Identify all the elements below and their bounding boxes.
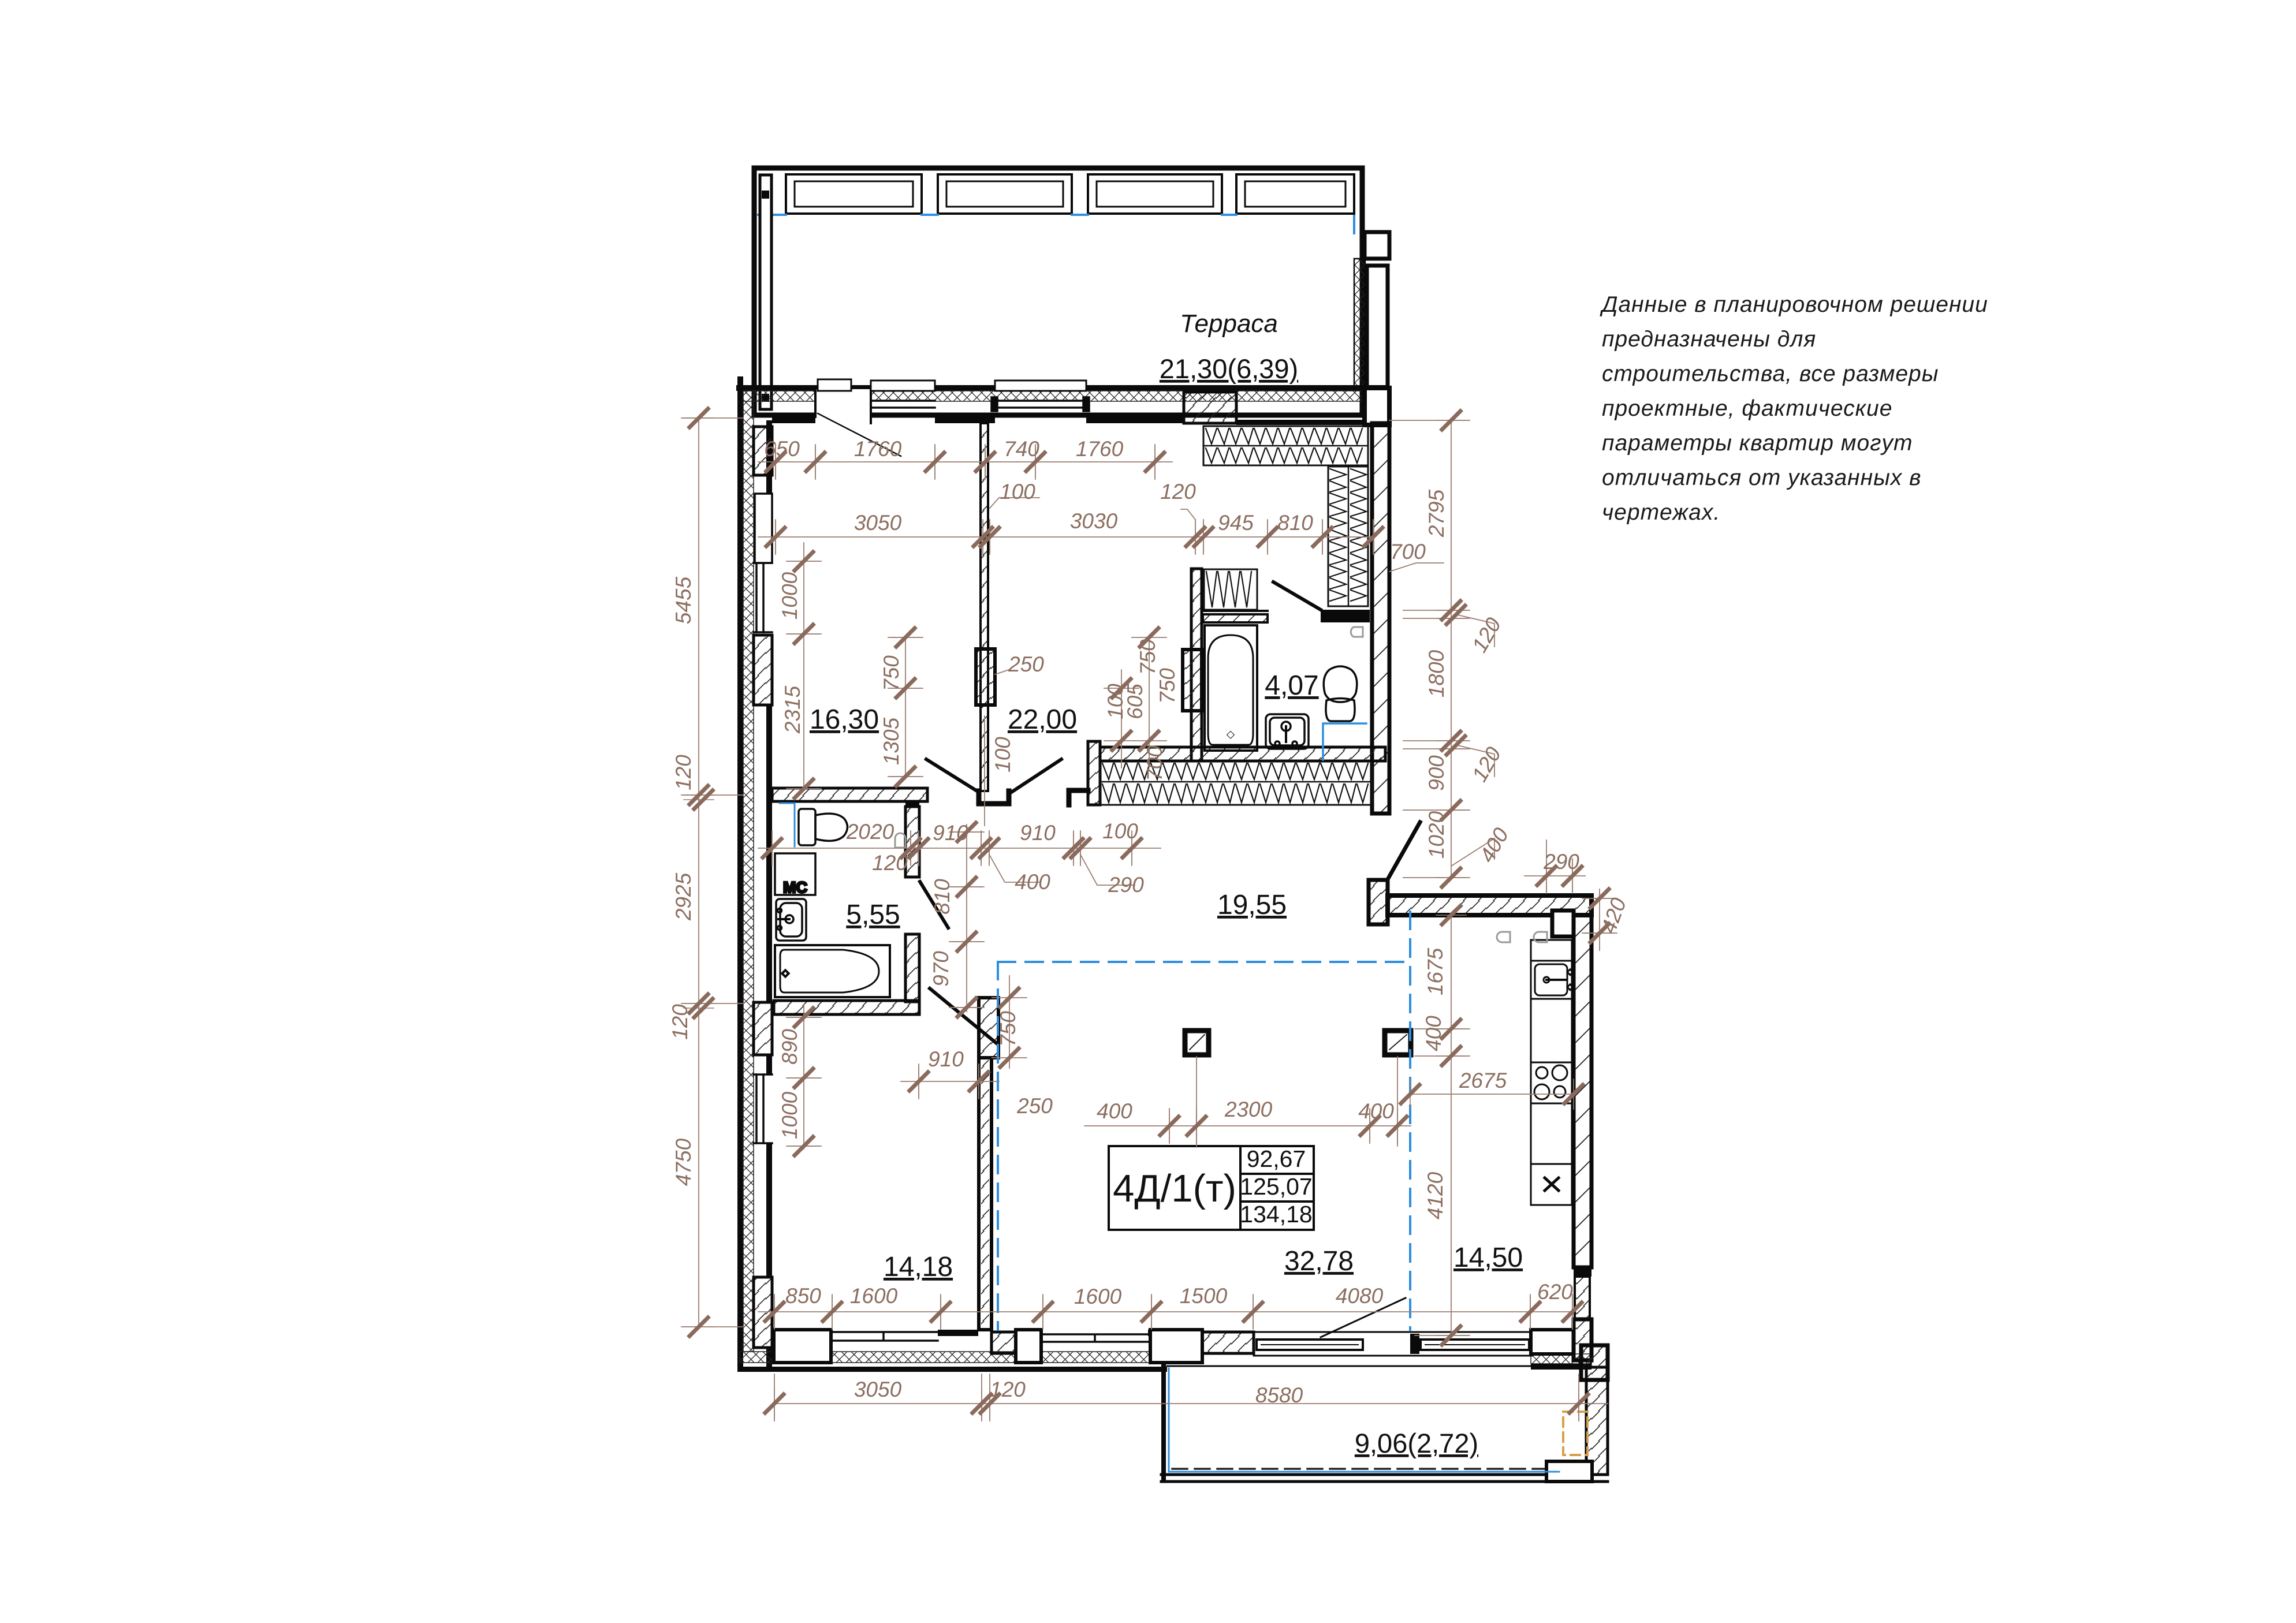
svg-text:2795: 2795 bbox=[1425, 489, 1448, 538]
svg-text:910: 910 bbox=[933, 821, 968, 845]
svg-text:2675: 2675 bbox=[1459, 1069, 1507, 1092]
svg-text:14,50: 14,50 bbox=[1453, 1243, 1523, 1273]
svg-text:1305: 1305 bbox=[879, 717, 903, 765]
svg-text:3030: 3030 bbox=[1070, 509, 1118, 533]
svg-text:16,30: 16,30 bbox=[810, 704, 879, 735]
svg-text:750: 750 bbox=[879, 655, 903, 691]
svg-text:120: 120 bbox=[872, 851, 908, 875]
svg-text:Данные в планировочном реше: Данные в планировочном решении bbox=[1600, 292, 1988, 317]
svg-text:750: 750 bbox=[996, 1011, 1020, 1047]
svg-text:250: 250 bbox=[1008, 652, 1044, 676]
svg-text:14,18: 14,18 bbox=[884, 1252, 953, 1282]
svg-text:1000: 1000 bbox=[778, 572, 802, 620]
svg-text:5455: 5455 bbox=[672, 576, 695, 624]
svg-text:5,55: 5,55 bbox=[846, 900, 900, 930]
svg-text:1675: 1675 bbox=[1423, 947, 1447, 995]
svg-text:740: 740 bbox=[1004, 437, 1039, 461]
svg-text:1600: 1600 bbox=[1074, 1285, 1122, 1308]
svg-text:2300: 2300 bbox=[1224, 1098, 1273, 1121]
svg-text:1500: 1500 bbox=[1180, 1284, 1228, 1308]
svg-text:19,55: 19,55 bbox=[1217, 890, 1287, 920]
svg-text:отличаться от указанных в: отличаться от указанных в bbox=[1602, 465, 1922, 490]
svg-text:4120: 4120 bbox=[1423, 1171, 1447, 1219]
svg-text:2315: 2315 bbox=[781, 685, 804, 734]
svg-text:810: 810 bbox=[930, 879, 954, 915]
svg-text:120: 120 bbox=[990, 1378, 1026, 1401]
svg-text:910: 910 bbox=[928, 1047, 964, 1071]
svg-text:700: 700 bbox=[1390, 540, 1426, 564]
svg-text:1800: 1800 bbox=[1425, 650, 1448, 697]
svg-text:чертежах.: чертежах. bbox=[1602, 500, 1720, 525]
svg-text:3050: 3050 bbox=[854, 511, 902, 535]
svg-text:92,67: 92,67 bbox=[1247, 1146, 1306, 1172]
svg-text:890: 890 bbox=[778, 1029, 802, 1065]
svg-text:850: 850 bbox=[785, 1284, 821, 1308]
svg-text:970: 970 bbox=[929, 951, 953, 987]
svg-text:250: 250 bbox=[1016, 1094, 1053, 1118]
svg-text:650: 650 bbox=[764, 437, 800, 461]
svg-text:Терраса: Терраса bbox=[1180, 309, 1278, 338]
svg-text:4750: 4750 bbox=[672, 1138, 695, 1186]
svg-text:1600: 1600 bbox=[850, 1284, 898, 1308]
svg-text:1760: 1760 bbox=[854, 437, 902, 461]
svg-text:900: 900 bbox=[1425, 755, 1448, 791]
svg-text:строительства, все размеры: строительства, все размеры bbox=[1602, 361, 1939, 386]
svg-text:4080: 4080 bbox=[1336, 1284, 1384, 1308]
svg-text:проектные, фактические: проектные, фактические bbox=[1602, 396, 1892, 421]
svg-text:400: 400 bbox=[1358, 1099, 1394, 1123]
svg-text:2925: 2925 bbox=[672, 872, 695, 921]
svg-text:620: 620 bbox=[1537, 1280, 1573, 1304]
svg-text:100: 100 bbox=[1102, 819, 1138, 843]
svg-text:32,78: 32,78 bbox=[1284, 1246, 1354, 1277]
svg-text:100: 100 bbox=[991, 737, 1015, 773]
svg-text:290: 290 bbox=[1108, 873, 1144, 897]
svg-text:параметры квартир могут: параметры квартир могут bbox=[1602, 431, 1913, 456]
svg-text:945: 945 bbox=[1218, 511, 1254, 535]
svg-text:МС: МС bbox=[783, 879, 807, 896]
svg-text:120: 120 bbox=[1160, 480, 1196, 503]
svg-text:1000: 1000 bbox=[778, 1091, 802, 1139]
svg-text:9,06(2,72): 9,06(2,72) bbox=[1355, 1428, 1478, 1458]
svg-text:8580: 8580 bbox=[1255, 1383, 1303, 1407]
svg-text:1760: 1760 bbox=[1076, 437, 1124, 461]
svg-text:22,00: 22,00 bbox=[1008, 704, 1077, 735]
svg-text:4,07: 4,07 bbox=[1265, 670, 1318, 701]
svg-text:605: 605 bbox=[1123, 684, 1147, 719]
svg-text:134,18: 134,18 bbox=[1240, 1201, 1312, 1227]
svg-text:400: 400 bbox=[1015, 870, 1050, 894]
svg-text:21,30(6,39): 21,30(6,39) bbox=[1160, 353, 1298, 384]
svg-text:810: 810 bbox=[1277, 511, 1313, 535]
svg-text:700: 700 bbox=[1143, 745, 1166, 781]
svg-text:предназначены для: предназначены для bbox=[1602, 327, 1816, 352]
svg-text:910: 910 bbox=[1020, 821, 1056, 845]
svg-text:120: 120 bbox=[672, 755, 695, 790]
svg-text:2020: 2020 bbox=[846, 820, 894, 844]
svg-text:125,07: 125,07 bbox=[1240, 1173, 1312, 1200]
svg-text:120: 120 bbox=[668, 1004, 692, 1040]
svg-text:1020: 1020 bbox=[1425, 811, 1448, 859]
svg-text:290: 290 bbox=[1543, 850, 1579, 874]
svg-text:400: 400 bbox=[1097, 1099, 1132, 1123]
svg-text:100: 100 bbox=[1000, 480, 1035, 503]
svg-text:4Д/1(т): 4Д/1(т) bbox=[1113, 1167, 1236, 1210]
svg-text:3050: 3050 bbox=[854, 1378, 902, 1401]
svg-text:750: 750 bbox=[1156, 668, 1179, 704]
svg-text:400: 400 bbox=[1422, 1016, 1445, 1051]
